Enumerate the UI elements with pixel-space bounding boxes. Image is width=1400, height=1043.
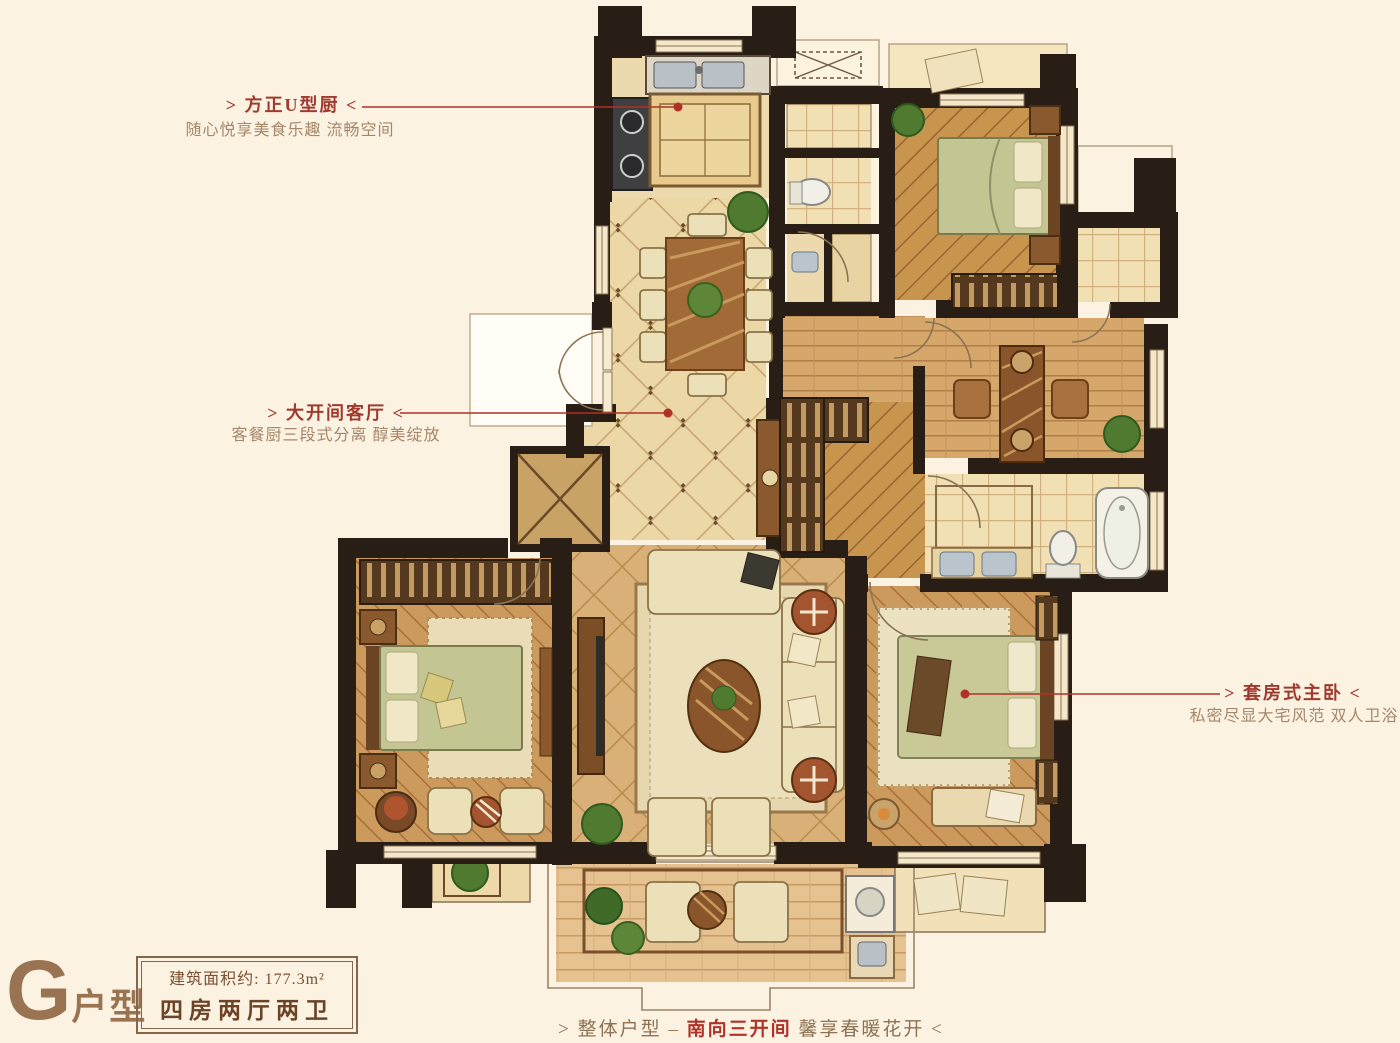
info-box-inner: 建筑面积约: 177.3m² 四房两厅两卫 xyxy=(141,961,353,1029)
vanity-sink xyxy=(982,552,1016,576)
kitchen-leader-dot xyxy=(674,103,683,112)
wardrobe-side xyxy=(780,398,824,552)
bedroom2-plant-top xyxy=(384,796,408,820)
dining-chair xyxy=(746,332,772,362)
coffee-table-plant xyxy=(712,686,736,710)
kitchen-sink-right xyxy=(702,62,744,88)
toilet-tank xyxy=(1046,564,1080,578)
master-wardrobe xyxy=(1036,760,1058,804)
toilet-tank xyxy=(790,182,802,204)
annotation-master-subtitle: 私密尽显大宅风范 双人卫浴 xyxy=(1144,707,1400,727)
living-plant xyxy=(582,804,622,844)
kitchen-sink-left xyxy=(654,62,696,88)
balcony-plant xyxy=(586,888,622,924)
bedroom2-pillow xyxy=(386,700,418,742)
unit-label: G户型 xyxy=(6,948,147,1032)
annotation-living: > 大开间客厅 < xyxy=(206,402,466,425)
dining-chair xyxy=(746,290,772,320)
bedroom1-wardrobe xyxy=(952,274,1058,308)
annotation-kitchen: > 方正U型厨 < xyxy=(162,94,422,117)
window xyxy=(1054,634,1068,720)
bedroom1-pillow xyxy=(1014,188,1042,228)
bedroom1-plant xyxy=(892,104,924,136)
master-clock xyxy=(878,808,890,820)
floor-plan-graphic xyxy=(0,0,1400,1043)
annotation-kitchen-sub: 随心悦享美食乐趣 流畅空间 xyxy=(140,121,440,141)
stove-burner xyxy=(621,111,643,133)
master-pillow xyxy=(1008,698,1036,748)
info-layout-line: 四房两厅两卫 xyxy=(160,991,334,1025)
master-wardrobe xyxy=(1036,596,1058,640)
balcony-chair xyxy=(734,882,788,942)
dining-chair xyxy=(746,248,772,278)
ottoman xyxy=(648,798,706,856)
window xyxy=(940,94,1024,106)
annotation-master-sub: 私密尽显大宅风范 双人卫浴 xyxy=(1144,707,1400,727)
elevator-shaft xyxy=(514,450,606,548)
study-globe xyxy=(1011,429,1033,451)
study-globe xyxy=(1011,351,1033,373)
nightstand xyxy=(1030,106,1060,134)
bedroom2-headboard xyxy=(366,646,380,750)
nightstand-lamp xyxy=(370,619,386,635)
room-closet xyxy=(1078,228,1160,302)
room-hall-upper xyxy=(783,316,925,402)
stove-burner xyxy=(621,155,643,177)
sofa-pillow xyxy=(787,633,820,666)
shower-enclosure xyxy=(936,486,1032,548)
bedroom2-bench xyxy=(540,648,552,756)
unit-letter: G xyxy=(6,948,71,1032)
bedroom2-furniture xyxy=(360,560,552,834)
bottom-tagline-highlight: 南向三开间 xyxy=(687,1019,792,1040)
bay-pillow xyxy=(914,873,961,914)
master-leader-dot xyxy=(961,690,970,699)
entry-door-leaf xyxy=(603,372,612,412)
dining-plant xyxy=(728,192,768,232)
room-bath-closet xyxy=(832,234,871,302)
master-pillow xyxy=(1008,642,1036,692)
bedroom2-chair xyxy=(500,788,544,834)
study-plant xyxy=(1104,416,1140,452)
sofa-pillow xyxy=(788,696,820,728)
bathtub-drain xyxy=(1119,505,1125,511)
bedroom2-pillow xyxy=(386,652,418,694)
annotation-living-subtitle: 客餐厨三段式分离 醇美绽放 xyxy=(186,426,486,446)
bedroom2-wardrobe xyxy=(360,560,552,604)
floor-plan-page: > 方正U型厨 < 随心悦享美食乐趣 流畅空间 > 大开间客厅 < 客餐厨三段式… xyxy=(0,0,1400,1043)
master-bench-pillow xyxy=(986,789,1024,822)
study-chair xyxy=(1052,380,1088,418)
annotation-kitchen-subtitle: 随心悦享美食乐趣 流畅空间 xyxy=(140,121,440,141)
bottom-tagline-prefix: > 整体户型 – xyxy=(558,1019,686,1040)
annotation-living-sub: 客餐厨三段式分离 醇美绽放 xyxy=(186,426,486,446)
dining-chair xyxy=(640,290,666,320)
nightstand xyxy=(1030,236,1060,264)
dining-chair xyxy=(688,374,726,396)
annotation-master: > 套房式主卧 < xyxy=(1163,682,1400,705)
window xyxy=(384,846,536,858)
bay-pillow xyxy=(960,876,1008,916)
master-headboard xyxy=(1040,634,1054,760)
vanity-sink xyxy=(940,552,974,576)
bedroom2-chair xyxy=(428,788,472,834)
annotation-living-title: > 大开间客厅 < xyxy=(206,402,466,425)
nightstand-lamp xyxy=(370,763,386,779)
bedroom2-throw-pillow xyxy=(436,698,467,729)
study-chair xyxy=(954,380,990,418)
ottoman xyxy=(712,798,770,856)
dining-chair xyxy=(640,332,666,362)
window xyxy=(898,852,1040,864)
balcony-plant xyxy=(612,922,644,954)
info-box: 建筑面积约: 177.3m² 四房两厅两卫 xyxy=(136,956,358,1034)
laundry-basin xyxy=(858,942,886,966)
console-decor xyxy=(762,470,778,486)
dining-centerpiece-plant xyxy=(688,283,722,317)
annotation-master-title: > 套房式主卧 < xyxy=(1163,682,1400,705)
dining-chair xyxy=(640,248,666,278)
window xyxy=(1150,492,1164,570)
window xyxy=(596,226,608,294)
kitchen-faucet xyxy=(695,66,703,74)
tv-screen xyxy=(596,636,604,756)
bedroom1-headboard xyxy=(1048,136,1060,236)
room-shower xyxy=(787,104,871,148)
annotation-kitchen-title: > 方正U型厨 < xyxy=(162,94,422,117)
toilet-bowl xyxy=(1050,531,1076,565)
bedroom1-pillow xyxy=(1014,142,1042,182)
window xyxy=(1060,126,1074,204)
bottom-tagline: > 整体户型 – 南向三开间 馨享春暖花开 < xyxy=(451,1014,1051,1041)
window xyxy=(1150,350,1164,428)
entry-door-leaf xyxy=(603,328,612,370)
dining-chair xyxy=(688,214,726,236)
info-area-line: 建筑面积约: 177.3m² xyxy=(169,965,325,989)
wash-sink xyxy=(792,252,818,272)
living-leader-dot xyxy=(664,409,673,418)
washing-machine-door xyxy=(856,888,884,916)
bottom-tagline-suffix: 馨享春暖花开 < xyxy=(792,1019,944,1040)
window xyxy=(656,40,742,52)
